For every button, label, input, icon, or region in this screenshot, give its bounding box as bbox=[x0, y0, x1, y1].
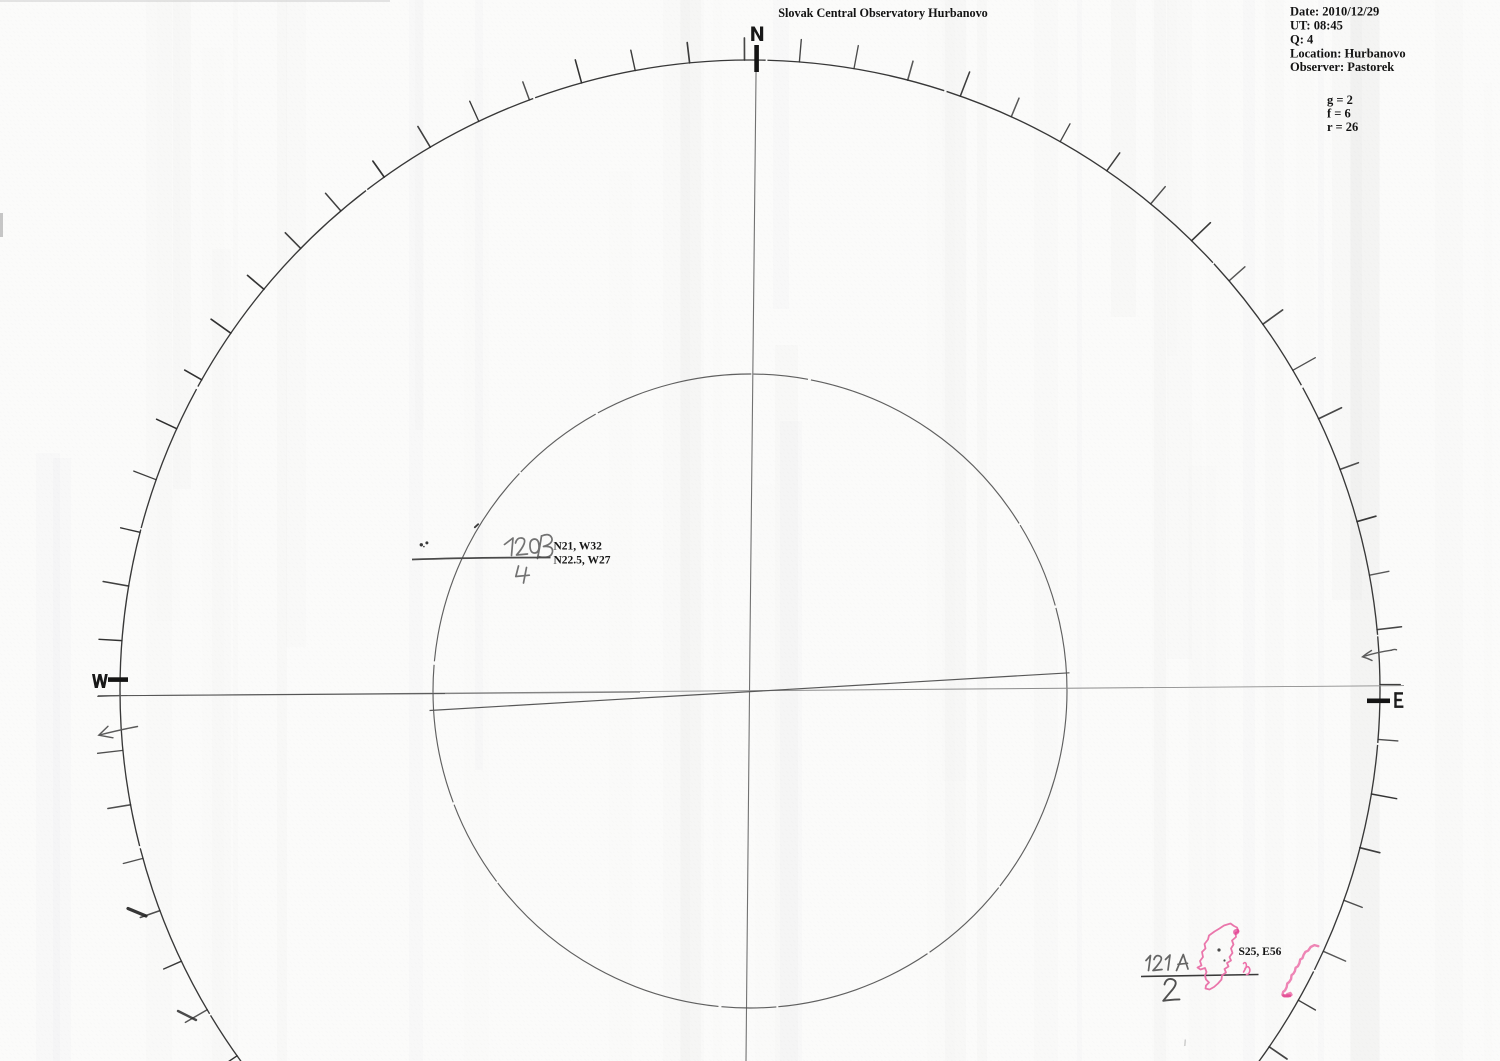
svg-text:Location: Hurbanovo: Location: Hurbanovo bbox=[1290, 47, 1406, 61]
svg-text:Slovak Central Observatory Hur: Slovak Central Observatory Hurbanovo bbox=[778, 6, 988, 20]
svg-text:S25, E56: S25, E56 bbox=[1239, 946, 1282, 958]
svg-text:N22.5, W27: N22.5, W27 bbox=[554, 555, 611, 567]
svg-text:Observer: Pastorek: Observer: Pastorek bbox=[1290, 60, 1394, 74]
svg-text:g = 2: g = 2 bbox=[1327, 93, 1353, 107]
svg-text:UT: 08:45: UT: 08:45 bbox=[1290, 19, 1343, 33]
svg-text:f = 6: f = 6 bbox=[1327, 107, 1351, 121]
svg-text:N21, W32: N21, W32 bbox=[554, 541, 603, 553]
svg-text:Date: 2010/12/29: Date: 2010/12/29 bbox=[1290, 5, 1379, 19]
svg-text:r = 26: r = 26 bbox=[1327, 120, 1358, 134]
svg-text:Q: 4: Q: 4 bbox=[1290, 33, 1314, 47]
